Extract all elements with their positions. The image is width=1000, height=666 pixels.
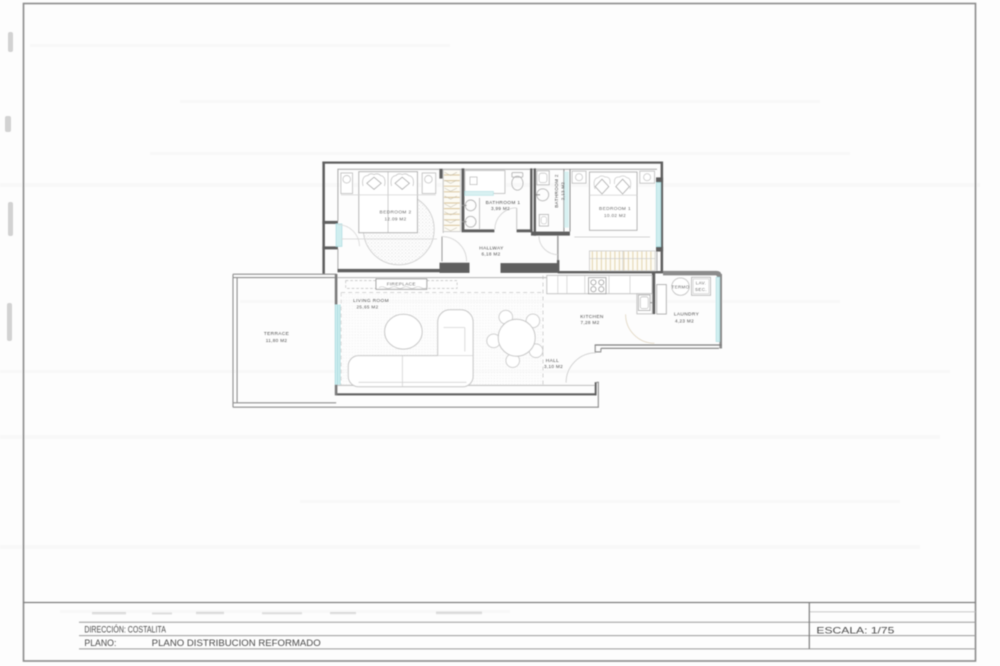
- svg-text:4,23 M2: 4,23 M2: [675, 319, 694, 324]
- svg-text:7,28 M2: 7,28 M2: [580, 320, 599, 325]
- svg-text:DIRECCIÓN: COSTALITA: DIRECCIÓN: COSTALITA: [84, 624, 165, 634]
- svg-text:3,10 M2: 3,10 M2: [544, 364, 563, 369]
- svg-text:ESCALA: 1/75: ESCALA: 1/75: [816, 625, 894, 636]
- svg-text:BEDROOM 2: BEDROOM 2: [380, 210, 412, 216]
- svg-text:2,13 M2: 2,13 M2: [561, 182, 566, 201]
- svg-text:LAUNDRY: LAUNDRY: [674, 312, 700, 318]
- svg-text:10.02 M2: 10.02 M2: [604, 213, 626, 218]
- svg-text:SEC.: SEC.: [695, 287, 707, 292]
- svg-text:LAV.: LAV.: [696, 281, 706, 286]
- svg-text:12.09 M2: 12.09 M2: [385, 217, 407, 222]
- svg-text:TERRACE: TERRACE: [264, 331, 289, 337]
- svg-text:25,65 M2: 25,65 M2: [357, 305, 379, 310]
- svg-text:BEDROOM 1: BEDROOM 1: [599, 206, 631, 212]
- svg-text:FIREPLACE: FIREPLACE: [387, 282, 416, 287]
- svg-text:BATHROOM 2: BATHROOM 2: [554, 174, 559, 208]
- svg-text:LIVING ROOM: LIVING ROOM: [353, 298, 389, 304]
- svg-text:PLANO DISTRIBUCION REFORMADO: PLANO DISTRIBUCION REFORMADO: [152, 638, 321, 648]
- svg-text:PLANO:: PLANO:: [84, 638, 116, 648]
- svg-text:3,99 M2: 3,99 M2: [491, 206, 510, 211]
- svg-text:TERMO: TERMO: [672, 284, 690, 289]
- svg-text:6,18 M2: 6,18 M2: [481, 252, 500, 257]
- svg-text:11,80 M2: 11,80 M2: [266, 338, 288, 343]
